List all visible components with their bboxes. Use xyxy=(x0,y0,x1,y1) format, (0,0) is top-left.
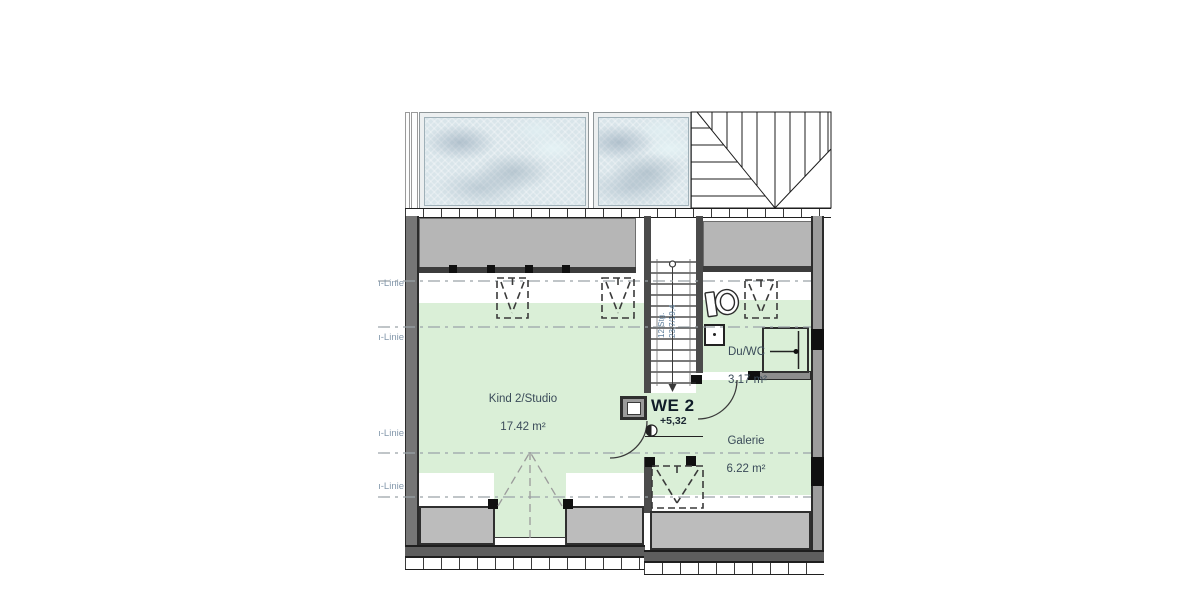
room-name: Kind 2/Studio xyxy=(460,392,586,406)
scale-tick-strip-bottom-right xyxy=(644,562,824,575)
height-line-label-3: ı-Linie xyxy=(358,428,404,439)
wall-post xyxy=(487,265,495,273)
room-area: 6.22 m² xyxy=(706,462,786,476)
wall-post xyxy=(449,265,457,273)
level-value: +5,32 xyxy=(660,415,687,427)
height-line-label-2: ı-Linie xyxy=(358,332,404,343)
knee-wall-band-top-right xyxy=(703,221,812,267)
scale-tick-strip-top xyxy=(405,208,831,218)
height-line-label-1: ı-Linie xyxy=(358,278,404,289)
window-frame-strip xyxy=(411,112,418,209)
wall-post xyxy=(686,456,696,466)
knee-wall-bottom-right xyxy=(650,511,811,550)
stair-dims-label: 23,7/19,4 xyxy=(668,304,677,338)
floor-dormer-recess xyxy=(494,473,566,537)
wall-post xyxy=(562,265,570,273)
scale-tick-strip-bottom-left xyxy=(405,557,644,570)
stair-steps-label: 12 Stg. xyxy=(657,313,666,338)
stair-wall-right xyxy=(696,216,703,373)
wall-post xyxy=(811,329,824,350)
window-frame-strip xyxy=(405,112,410,209)
room-name: Galerie xyxy=(706,434,786,448)
wall-post xyxy=(563,499,573,509)
knee-wall-band-top-left xyxy=(419,218,636,268)
stair-wall-left xyxy=(644,216,651,393)
skylight-glass xyxy=(424,117,586,206)
height-line-label-4: ı-Linie xyxy=(358,481,404,492)
outer-wall-bottom-left xyxy=(405,545,645,557)
knee-wall-bottom-left-a xyxy=(419,506,495,545)
walking-line-start xyxy=(670,261,676,267)
room-area: 17.42 m² xyxy=(460,420,586,434)
skylight-photo-panel-right xyxy=(593,112,692,209)
room-label-duwc: Du/WC 3.17 m² xyxy=(728,331,792,401)
room-name: Du/WC xyxy=(728,345,792,359)
room-label-galerie: Galerie 6.22 m² xyxy=(706,420,786,490)
shaft-icon xyxy=(620,396,647,420)
skylight-glass xyxy=(598,117,689,206)
wall-post xyxy=(645,457,655,467)
unit-label: WE 2 xyxy=(651,396,695,416)
shaft-core xyxy=(627,402,641,415)
room-label-kind-studio: Kind 2/Studio 17.42 m² xyxy=(460,378,586,448)
stair-exit-landing xyxy=(651,373,696,393)
winder-stair-pattern xyxy=(691,112,831,208)
wall-post xyxy=(691,375,702,384)
wall-post xyxy=(525,265,533,273)
washbasin-drain xyxy=(713,333,716,336)
outer-wall-left xyxy=(405,216,419,557)
knee-wall-edge xyxy=(703,266,812,272)
skylight-photo-panel-left xyxy=(419,112,589,209)
knee-wall-bottom-left-b xyxy=(565,506,644,545)
floor-plan-canvas: 12 Stg. 23,7/19,4 xyxy=(0,0,1200,600)
wall-post xyxy=(811,457,824,486)
room-area: 3.17 m² xyxy=(728,373,792,387)
washbasin-icon xyxy=(704,324,725,346)
outer-wall-bottom-right xyxy=(644,550,824,562)
wall-post xyxy=(488,499,498,509)
outer-wall-right xyxy=(811,216,824,570)
